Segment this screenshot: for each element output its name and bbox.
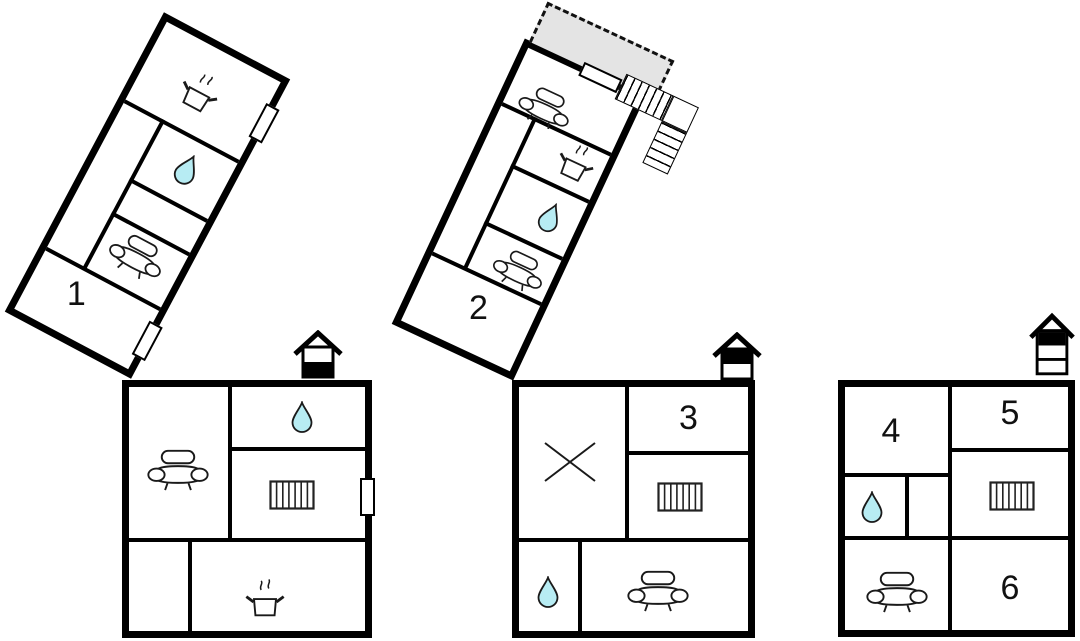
unit-label-1: 1 [46,277,106,311]
water-drop-icon [860,491,884,523]
house-a [122,380,372,638]
wall [948,448,1068,452]
window [132,321,163,362]
wall [578,542,582,631]
wall [845,536,1068,540]
wall [188,542,192,631]
window [249,103,280,144]
unit-label-4: 4 [845,414,937,448]
wall [129,538,365,542]
unit-label-6: 6 [952,571,1068,605]
stove-icon [168,63,229,123]
water-drop-icon [290,401,314,433]
wall [845,473,952,477]
water-drop-icon [169,150,205,190]
upper-floor-indicator-icon [711,332,763,382]
top-floor-indicator-icon [1028,312,1076,378]
water-drop-icon [536,576,560,608]
wall [625,451,748,455]
sofa-icon [512,78,579,137]
unit-label-2: 2 [454,291,504,325]
stove-icon [242,578,288,622]
building-1: 1 [5,12,290,378]
radiator-icon [657,482,703,512]
cross-icon [541,438,599,486]
house-c: 4 5 6 [838,380,1075,637]
wall [519,538,748,542]
unit-label-5: 5 [952,396,1068,430]
house-b: 3 [512,380,755,638]
wall [228,447,365,451]
sofa-icon [627,568,689,612]
window [360,478,375,516]
wall [228,387,232,542]
sofa-icon [866,569,928,613]
ground-floor-indicator-icon [292,330,344,380]
unit-label-3: 3 [629,401,748,435]
wall [905,473,909,540]
building-2: 2 [392,38,647,380]
floor-plan-canvas: 1 2 3 [0,0,1080,641]
stairs-lower-flight-icon [642,121,687,175]
radiator-icon [269,480,315,510]
sofa-icon [147,447,209,491]
water-drop-icon [533,198,567,236]
sofa-icon [102,224,172,287]
radiator-icon [989,481,1035,511]
wall [128,178,208,223]
